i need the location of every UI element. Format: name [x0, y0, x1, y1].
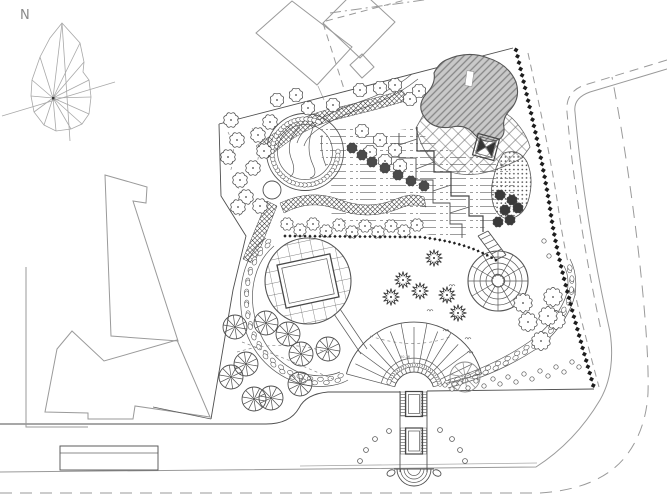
cobble-pebble [270, 361, 277, 368]
elevation-label: 50.76 [400, 355, 410, 359]
hedge-diamond [428, 237, 431, 240]
tree-center-dot [245, 196, 247, 198]
north-label: N [20, 8, 30, 23]
tree-center-dot [252, 167, 254, 169]
hedge-diamond [526, 98, 531, 103]
tree-center-dot [286, 223, 288, 225]
shrub-circle [514, 380, 518, 384]
hedge-diamond [438, 238, 441, 241]
bench-outer [60, 446, 158, 470]
cobble-pebble [244, 302, 249, 308]
bed-dashed-outline [370, 336, 452, 344]
grid-plaza [265, 238, 367, 354]
hedge-diamond [521, 79, 526, 84]
hedge-diamond [423, 236, 426, 239]
plot-strip-line [153, 407, 211, 419]
entrance-walk [386, 391, 442, 486]
hedge-diamond [393, 235, 396, 238]
hedge-diamond [559, 264, 564, 269]
hedge-diamond [448, 240, 451, 243]
hedge-diamond [589, 377, 594, 382]
hedge-diamond [542, 174, 547, 179]
tree-center-dot [332, 104, 334, 106]
tree-center-dot [379, 139, 381, 141]
tree-center-dot [394, 149, 396, 151]
tree-center-dot [369, 151, 371, 153]
tree-center-dot [409, 98, 411, 100]
hedge-diamond [443, 239, 446, 242]
north-arrow: N [2, 8, 115, 141]
hedge-diamond [358, 235, 361, 238]
road-inner-second-line [300, 463, 537, 466]
tree-center-dot [379, 87, 381, 89]
hedge-diamond [580, 346, 585, 351]
shrub-circle [547, 254, 551, 258]
hedge-diamond [548, 206, 553, 211]
tree-center-dot [276, 99, 278, 101]
tree-center-dot [234, 326, 236, 328]
hedge-diamond [515, 54, 520, 59]
bollard [463, 459, 468, 464]
cobble-pebble [328, 376, 334, 381]
tree-center-dot [236, 139, 238, 141]
hedge-diamond [548, 213, 553, 218]
tree-center-dot [522, 302, 524, 304]
hedge-diamond [467, 246, 470, 249]
hedge-diamond [514, 48, 519, 53]
grass-tuft [449, 285, 455, 287]
tree-center-dot [327, 348, 329, 350]
cobble-pebble [245, 280, 250, 286]
hedge-diamond [318, 235, 321, 238]
shrub-circle [562, 370, 566, 374]
tree-center-dot [359, 89, 361, 91]
hedge-diamond [383, 235, 386, 238]
hedge-diamond [313, 235, 316, 238]
tree-center-dot [265, 322, 267, 324]
hedge-diamond [368, 235, 371, 238]
bollard [364, 448, 369, 453]
tree-center-dot [540, 340, 542, 342]
park-layer: 50.76 [211, 48, 531, 486]
tree-center-dot [270, 397, 272, 399]
tree-center-dot [416, 224, 418, 226]
tree-center-dot [263, 150, 265, 152]
hedge-diamond [551, 226, 556, 231]
tree-center-dot [299, 383, 301, 385]
hedge-diamond [388, 235, 391, 238]
tree-center-dot [547, 315, 549, 317]
hedge-diamond [534, 136, 539, 141]
tree-center-dot [299, 229, 301, 231]
hedge-diamond [577, 333, 582, 338]
shrub-circle [443, 383, 447, 387]
bench-top-band [60, 446, 158, 453]
hedge-diamond [418, 235, 421, 238]
hedge-diamond [573, 320, 578, 325]
cobble-pebble [244, 291, 248, 297]
walk-band-right-bottom [421, 428, 427, 454]
hedge-diamond [582, 352, 587, 357]
sidewalk-left-edge [0, 392, 400, 424]
bollard [387, 429, 392, 434]
context-building-left [26, 175, 211, 427]
hedge-diamond [571, 314, 576, 319]
tree-center-dot [227, 156, 229, 158]
steps-side-left [386, 469, 396, 478]
bollard [438, 428, 443, 433]
hedge-diamond [490, 256, 493, 259]
context-dashdot-line [330, 0, 510, 13]
tree-center-dot [433, 257, 435, 259]
north-leaf-outline [31, 23, 91, 131]
hedge-diamond [547, 200, 552, 205]
hedge-diamond [288, 234, 291, 237]
hedge-diamond [333, 235, 336, 238]
hedge-diamond [549, 219, 554, 224]
hedge-diamond [531, 123, 536, 128]
cobble-pebble [318, 377, 324, 381]
hedge-diamond [523, 85, 528, 90]
tree-center-dot [287, 333, 289, 335]
tree-center-dot [351, 231, 353, 233]
hedge-diamond [554, 245, 559, 250]
cobble-pebble [323, 380, 329, 385]
shrub-circle [491, 377, 495, 381]
context-building-square-a [256, 1, 352, 85]
tree-center-dot [399, 165, 401, 167]
hedge-diamond [308, 235, 311, 238]
planter-bottom-outer [406, 428, 423, 454]
north-leaf-veins [31, 23, 91, 131]
hedge-diamond [413, 235, 416, 238]
shrub-circle [554, 365, 558, 369]
cobble-pebble [296, 374, 303, 380]
hedge-diamond [477, 249, 480, 252]
tree-center-dot [312, 223, 314, 225]
hedge-diamond [537, 149, 542, 154]
shrub-circle [546, 374, 550, 378]
shrub-circle [542, 239, 546, 243]
site-plan-svg: N [0, 0, 667, 500]
hedge-diamond [517, 60, 522, 65]
hedge-diamond [494, 259, 497, 262]
shrub-circle [482, 384, 486, 388]
hedge-diamond [486, 254, 489, 257]
tree-center-dot [300, 353, 302, 355]
bench-shelter [60, 446, 158, 470]
planter-top-inner [409, 395, 420, 414]
hedge-diamond [575, 327, 580, 332]
hedge-diamond [560, 270, 565, 275]
shrub-circle [577, 365, 581, 369]
hedge-diamond [557, 257, 562, 262]
hedge-diamond [520, 73, 525, 78]
hedge-diamond [338, 235, 341, 238]
hedge-diamond [563, 283, 568, 288]
hedge-diamond [530, 117, 535, 122]
spiral-ring [492, 275, 504, 287]
hedge-diamond [283, 234, 286, 237]
shrub-circle [522, 372, 526, 376]
tree-center-dot [394, 84, 396, 86]
tree-center-dot [402, 279, 404, 281]
tree-center-dot [403, 230, 405, 232]
plot-boundary-lines [26, 267, 88, 427]
hedge-diamond [587, 371, 592, 376]
hedge-diamond [585, 364, 590, 369]
tree-center-dot [230, 376, 232, 378]
tree-center-dot [307, 107, 309, 109]
road-parcel-dashed-edge [567, 60, 667, 330]
fan-arc-inner [395, 372, 434, 387]
shrub-circle [506, 375, 510, 379]
hedge-diamond [591, 383, 596, 388]
context-building-diamond [350, 54, 374, 78]
cobble-pebble [569, 287, 574, 293]
tree-center-dot [239, 179, 241, 181]
shrub-circle [466, 386, 470, 390]
bollard [373, 437, 378, 442]
site-plan-page: N [0, 0, 667, 500]
hedge-diamond [433, 237, 436, 240]
tree-center-dot [419, 290, 421, 292]
hedge-diamond [556, 251, 561, 256]
shrub-circle [530, 377, 534, 381]
hedge-diamond [408, 235, 411, 238]
hedge-diamond [538, 155, 543, 160]
walk-band-right-top [421, 392, 427, 416]
bollard [358, 459, 363, 464]
context-dashed-boundary-b [326, 0, 420, 21]
hedge-diamond [552, 232, 557, 237]
tree-center-dot [325, 230, 327, 232]
tree-center-dot [390, 225, 392, 227]
tree-center-dot [338, 224, 340, 226]
hedge-diamond [453, 241, 456, 244]
hedge-diamond [584, 358, 589, 363]
hedge-diamond [536, 143, 541, 148]
tree-center-dot [457, 312, 459, 314]
planter-top-outer [406, 392, 423, 417]
tree-center-dot [446, 294, 448, 296]
hedge-diamond [518, 67, 523, 72]
hedge-diamond [462, 244, 465, 247]
building-tower [105, 175, 178, 341]
hedge-diamond [363, 235, 366, 238]
tree-center-dot [364, 225, 366, 227]
grid-plaza-link-path [334, 309, 367, 354]
hedge-diamond [541, 168, 546, 173]
bollard [458, 448, 463, 453]
hedge-diamond [540, 162, 545, 167]
tree-center-dot [295, 94, 297, 96]
tree-center-dot [377, 231, 379, 233]
hedge-diamond [562, 276, 567, 281]
tree-center-dot [259, 205, 261, 207]
shrub-circle [570, 360, 574, 364]
tree-center-dot [384, 160, 386, 162]
hedge-diamond [524, 92, 529, 97]
tree-center-dot [253, 398, 255, 400]
hedge-diamond [529, 111, 534, 116]
hedge-diamond [553, 238, 558, 243]
hedge-diamond [533, 130, 538, 135]
grass-tuft [465, 338, 471, 340]
mound-side-circle [263, 181, 281, 199]
planter-bottom-inner [409, 431, 420, 451]
grass-tuft [427, 310, 433, 312]
hedge-diamond [578, 339, 583, 344]
tree-center-dot [552, 296, 554, 298]
cobble-pebble [312, 380, 318, 385]
north-axis-lines [2, 23, 115, 141]
tree-center-dot [257, 134, 259, 136]
tree-center-dot [527, 321, 529, 323]
tree-center-dot [245, 363, 247, 365]
tree-center-dot [269, 121, 271, 123]
hedge-diamond [543, 181, 548, 186]
shrub-circle [498, 382, 502, 386]
shrub-circle [450, 387, 454, 391]
tree-center-dot [390, 296, 392, 298]
tree-center-dot [464, 376, 466, 378]
north-center-dot [52, 97, 54, 99]
bollard [450, 437, 455, 442]
hedge-diamond [472, 248, 475, 251]
tree-center-dot [237, 206, 239, 208]
hedge-diamond [527, 104, 532, 109]
steps-side-right [432, 469, 442, 478]
cobble-pebble [569, 275, 574, 281]
hedge-diamond [545, 193, 550, 198]
tree-center-dot [230, 119, 232, 121]
hedge-diamond [458, 243, 461, 246]
tree-center-dot [361, 130, 363, 132]
hedge-diamond [544, 187, 549, 192]
building-base [45, 331, 210, 419]
tree-center-dot [418, 90, 420, 92]
shrub-circle [458, 381, 462, 385]
shrub-circle [538, 369, 542, 373]
shrub-circle [474, 379, 478, 383]
